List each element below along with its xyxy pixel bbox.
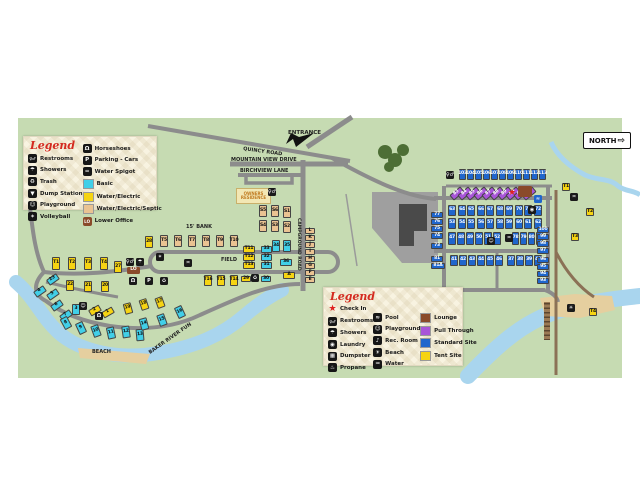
legend-label: Check In bbox=[340, 306, 366, 312]
swatch bbox=[420, 351, 431, 361]
legend-item-water: ♒Water bbox=[373, 360, 420, 369]
swatch bbox=[83, 192, 94, 202]
north-sign: NORTH ⇨ bbox=[583, 132, 631, 149]
legend-label: Playground bbox=[40, 202, 75, 208]
site-81A: 81A bbox=[431, 263, 445, 269]
swatch bbox=[420, 326, 431, 336]
site-74: 74 bbox=[431, 233, 443, 239]
legend-left-col1: ♀♂Restrooms☂Showers♻Trash▼Dump Station☺P… bbox=[28, 153, 83, 223]
legend-item-tent-site: Tent Site bbox=[420, 351, 477, 361]
site-113: 113 bbox=[539, 169, 546, 180]
legend-label: Pool bbox=[385, 315, 398, 321]
check-in-icon: ★ bbox=[328, 304, 337, 314]
laundry-icon: ◉ bbox=[528, 206, 536, 214]
swatch bbox=[83, 204, 94, 214]
site-59: 59 bbox=[505, 218, 513, 229]
site-S3: S3 bbox=[271, 220, 279, 232]
legend-label: Showers bbox=[340, 330, 366, 336]
restrooms-icon: ♀♂ bbox=[28, 154, 37, 163]
legend-item-dump-station: ▼Dump Station bbox=[28, 189, 83, 198]
site-H: H bbox=[305, 256, 315, 262]
site-S1: S1 bbox=[283, 206, 291, 218]
site-36: 36 bbox=[280, 259, 292, 266]
site-41: 41 bbox=[450, 255, 458, 266]
site-T1: T1 bbox=[562, 183, 570, 191]
trash-icon: ♻ bbox=[160, 277, 168, 285]
swatch bbox=[420, 313, 431, 323]
swatch bbox=[83, 179, 94, 189]
pool-icon: ≈ bbox=[373, 313, 382, 322]
legend-label: Basic bbox=[97, 181, 113, 187]
site-75: 75 bbox=[431, 226, 443, 232]
site-63: 63 bbox=[448, 205, 456, 216]
site-69: 69 bbox=[505, 205, 513, 216]
site-67: 67 bbox=[486, 205, 494, 216]
site-S4: S4 bbox=[259, 220, 267, 232]
legend-label: Water bbox=[385, 361, 404, 367]
playground-icon: ☺ bbox=[28, 201, 37, 210]
legend-item-trash: ♻Trash bbox=[28, 177, 83, 186]
site-108: 108 bbox=[499, 169, 506, 180]
site-T3: T3 bbox=[84, 257, 92, 270]
site-44: 44 bbox=[477, 255, 485, 266]
legend-label: Restrooms bbox=[40, 156, 73, 162]
site-27: 27 bbox=[114, 261, 122, 273]
site-T5: T5 bbox=[160, 235, 168, 247]
restrooms-icon: ♀♂ bbox=[126, 258, 134, 266]
site-103: 103 bbox=[459, 169, 466, 180]
beach-label: BEACH bbox=[92, 349, 111, 355]
legend-label: Dump Station bbox=[40, 191, 83, 197]
site-94: 94 bbox=[537, 271, 549, 277]
site-T1: T1 bbox=[52, 257, 60, 270]
propane-icon: ♨ bbox=[328, 363, 337, 372]
legend-right-col1: ★Check In♀♂Restrooms☂Showers◉Laundry▦Dum… bbox=[328, 303, 373, 374]
trash-icon: ♻ bbox=[28, 177, 37, 186]
legend-left: Legend ♀♂Restrooms☂Showers♻Trash▼Dump St… bbox=[23, 136, 157, 210]
legend-left-col2: ΩHorseshoesPParking - Cars♒Water SpigotB… bbox=[83, 143, 162, 227]
legend-item-horseshoes: ΩHorseshoes bbox=[83, 144, 162, 153]
legend-label: Beach bbox=[385, 350, 404, 356]
legend-item-playground: ☺Playground bbox=[28, 201, 83, 210]
legend-label: Propane bbox=[340, 365, 366, 371]
campground-map: ENTRANCE QUINCY ROAD MOUNTAIN VIEW DRIVE… bbox=[0, 0, 640, 495]
site-45: 45 bbox=[486, 255, 494, 266]
legend-right-col3: LoungePull ThroughStandard SiteTent Site bbox=[420, 312, 477, 362]
site-68: 68 bbox=[496, 205, 504, 216]
legend-label: Horseshoes bbox=[95, 146, 131, 152]
site-66: 66 bbox=[477, 205, 485, 216]
legend-item-restrooms: ♀♂Restrooms bbox=[328, 317, 373, 326]
site-98: 98 bbox=[537, 241, 549, 247]
dump-station-icon: ▼ bbox=[28, 189, 37, 198]
site-65: 65 bbox=[467, 205, 475, 216]
site-64: 64 bbox=[458, 205, 466, 216]
site-30: 30 bbox=[261, 276, 271, 282]
legend-item-lower-office: LOLower Office bbox=[83, 217, 162, 226]
site-J: J bbox=[305, 242, 315, 248]
legend-label: Parking - Cars bbox=[95, 157, 139, 163]
restrooms-icon: ♀♂ bbox=[268, 188, 276, 196]
site-95: 95 bbox=[537, 264, 549, 270]
site-S5: S5 bbox=[259, 205, 267, 217]
legend-label: Volleyball bbox=[40, 214, 70, 220]
site-33: 33 bbox=[261, 246, 272, 253]
legend-item-water-spigot: ♒Water Spigot bbox=[83, 167, 162, 176]
site-L: L bbox=[305, 228, 315, 234]
site-T2: T2 bbox=[68, 257, 76, 270]
playground-icon: ☺ bbox=[79, 302, 87, 310]
showers-icon: ☂ bbox=[136, 258, 144, 266]
showers-icon: ☂ bbox=[28, 166, 37, 175]
pool-icon: ≈ bbox=[534, 195, 542, 203]
site-50: 50 bbox=[475, 232, 483, 245]
legend-label: Water Spigot bbox=[95, 169, 136, 175]
bank-label: 15' BANK bbox=[186, 224, 213, 230]
parking-icon: P bbox=[83, 156, 92, 165]
horseshoes-icon: Ω bbox=[83, 144, 92, 153]
site-20: 20 bbox=[101, 281, 109, 292]
legend-item-standard-site: Standard Site bbox=[420, 338, 477, 348]
legend-label: Rec. Room bbox=[385, 338, 418, 344]
site-32: 32 bbox=[261, 254, 272, 261]
mountain-view-label: MOUNTAIN VIEW DRIVE bbox=[231, 157, 297, 163]
legend-item-water-electric: Water/Electric bbox=[83, 192, 162, 202]
site-104: 104 bbox=[467, 169, 474, 180]
site-S6: S6 bbox=[271, 205, 279, 217]
site-T6: T6 bbox=[174, 235, 182, 247]
field-label: FIELD bbox=[221, 257, 237, 263]
legend-item-laundry: ◉Laundry bbox=[328, 340, 373, 349]
site-T4: T4 bbox=[589, 308, 597, 316]
site-53: 53 bbox=[448, 218, 456, 229]
horseshoes-icon: Ω bbox=[95, 312, 103, 320]
site-T11: T11 bbox=[243, 246, 255, 253]
legend-item-rec-room: ♪Rec. Room bbox=[373, 336, 420, 345]
site-105: 105 bbox=[475, 169, 482, 180]
site-77: 77 bbox=[431, 212, 443, 218]
dumpster-icon: ▦ bbox=[328, 352, 337, 361]
site-78: 78 bbox=[512, 232, 519, 245]
playground-icon: ☺ bbox=[373, 325, 382, 334]
site-99: 99 bbox=[537, 234, 549, 240]
restrooms-icon: ♀♂ bbox=[328, 317, 337, 326]
site-56: 56 bbox=[477, 218, 485, 229]
site-E: E bbox=[305, 277, 315, 283]
site-T13: T13 bbox=[243, 262, 255, 269]
site-K: K bbox=[305, 235, 315, 241]
site-13: 13 bbox=[135, 329, 144, 342]
site-T14: T14 bbox=[230, 275, 238, 286]
site-81: 81 bbox=[431, 256, 443, 262]
site-39: 39 bbox=[525, 255, 533, 266]
legend-item-propane: ♨Propane bbox=[328, 363, 373, 372]
water-icon: ♒ bbox=[505, 234, 513, 242]
site-T16: T16 bbox=[204, 275, 212, 286]
site-107: 107 bbox=[491, 169, 498, 180]
site-35: 35 bbox=[283, 240, 291, 252]
site-48: 48 bbox=[457, 232, 465, 245]
legend-label: Playground bbox=[385, 326, 420, 332]
site-34: 34 bbox=[272, 240, 280, 252]
site-109: 109 bbox=[507, 169, 514, 180]
legend-right: Legend ★Check In♀♂Restrooms☂Showers◉Laun… bbox=[323, 287, 463, 366]
beach-icon: ☀ bbox=[567, 304, 575, 312]
site-37: 37 bbox=[507, 255, 515, 266]
site-96: 96 bbox=[537, 257, 549, 263]
legend-label: Dumpster bbox=[340, 353, 371, 359]
campground-road-label: CAMPGROUND ROAD bbox=[296, 218, 302, 271]
site-93: 93 bbox=[537, 278, 549, 284]
site-S2: S2 bbox=[283, 221, 291, 233]
site-A: A bbox=[283, 272, 295, 279]
legend-item-pool: ≈Pool bbox=[373, 313, 420, 322]
site-61: 61 bbox=[524, 218, 532, 229]
north-label: NORTH bbox=[589, 137, 617, 145]
volleyball-icon: ✶ bbox=[28, 212, 37, 221]
water-spigot-icon: ♒ bbox=[83, 167, 92, 176]
legend-item-pull-through: Pull Through bbox=[420, 326, 477, 336]
showers-icon: ☂ bbox=[328, 328, 337, 337]
legend-item-lounge: Lounge bbox=[420, 313, 477, 323]
site-47: 47 bbox=[448, 232, 456, 245]
water-icon: ♒ bbox=[570, 193, 578, 201]
site-55: 55 bbox=[467, 218, 475, 229]
legend-label: Lounge bbox=[434, 315, 457, 321]
restrooms-icon: ♀♂ bbox=[446, 171, 454, 179]
entrance-label: ENTRANCE bbox=[288, 130, 321, 136]
legend-label: Water/Electric/Septic bbox=[97, 206, 162, 212]
owners-residence: OWNERS RESIDENCE bbox=[236, 188, 271, 204]
legend-label: Showers bbox=[40, 167, 66, 173]
legend-label: Pull Through bbox=[434, 328, 474, 334]
legend-item-volleyball: ✶Volleyball bbox=[28, 212, 83, 221]
site-46: 46 bbox=[495, 255, 503, 266]
site-I: I bbox=[305, 249, 315, 255]
site-54: 54 bbox=[458, 218, 466, 229]
site-43: 43 bbox=[468, 255, 476, 266]
legend-label: Trash bbox=[40, 179, 57, 185]
site-31: 31 bbox=[261, 262, 272, 269]
site-79: 79 bbox=[520, 232, 527, 245]
site-97: 97 bbox=[537, 248, 549, 254]
north-arrow-icon: ⇨ bbox=[617, 136, 625, 146]
volleyball-icon: ✶ bbox=[156, 253, 164, 261]
water-icon: ♒ bbox=[373, 360, 382, 369]
legend-item-playground: ☺Playground bbox=[373, 325, 420, 334]
site-57: 57 bbox=[486, 218, 494, 229]
legend-item-beach: ☀Beach bbox=[373, 348, 420, 357]
legend-right-col2: ≈Pool☺Playground♪Rec. Room☀Beach♒Water bbox=[373, 312, 420, 370]
site-T15: T15 bbox=[217, 275, 225, 286]
legend-item-restrooms: ♀♂Restrooms bbox=[28, 154, 83, 163]
site-70: 70 bbox=[515, 205, 523, 216]
legend-item-basic: Basic bbox=[83, 179, 162, 189]
site-58: 58 bbox=[496, 218, 504, 229]
legend-item-parking-cars: PParking - Cars bbox=[83, 156, 162, 165]
trash-icon: ♻ bbox=[251, 274, 259, 282]
legend-label: Standard Site bbox=[434, 340, 477, 346]
site-T8: T8 bbox=[202, 235, 210, 247]
lower-office-icon: LO bbox=[127, 267, 140, 274]
site-111: 111 bbox=[523, 169, 530, 180]
lounge-building bbox=[518, 186, 532, 197]
legend-label: Water/Electric bbox=[97, 194, 141, 200]
legend-label: Tent Site bbox=[434, 353, 461, 359]
site-106: 106 bbox=[483, 169, 490, 180]
site-38: 38 bbox=[516, 255, 524, 266]
site-110: 110 bbox=[515, 169, 522, 180]
site-49: 49 bbox=[466, 232, 474, 245]
site-T9: T9 bbox=[216, 235, 224, 247]
site-21: 21 bbox=[84, 281, 92, 292]
parking-icon: P bbox=[145, 277, 153, 285]
legend-item-dumpster: ▦Dumpster bbox=[328, 352, 373, 361]
site-T2: T2 bbox=[586, 208, 594, 216]
rec-room-icon: ♪ bbox=[373, 336, 382, 345]
site-G: G bbox=[305, 263, 315, 269]
legend-right-title: Legend bbox=[324, 288, 462, 303]
lower-office-icon: LO bbox=[83, 217, 92, 226]
site-22: 22 bbox=[66, 280, 74, 291]
site-100: 100 bbox=[537, 227, 549, 233]
water-spigot-icon: ♒ bbox=[184, 259, 192, 267]
laundry-icon: ◉ bbox=[328, 340, 337, 349]
site-T12: T12 bbox=[243, 254, 255, 261]
legend-label: Restrooms bbox=[340, 318, 373, 324]
site-76: 76 bbox=[431, 219, 443, 225]
site-T4: T4 bbox=[100, 257, 108, 270]
site-80: 80 bbox=[528, 232, 535, 245]
birchview-label: BIRCHVIEW LANE bbox=[240, 168, 289, 174]
site-112: 112 bbox=[531, 169, 538, 180]
beach-icon: ☀ bbox=[373, 348, 382, 357]
legend-item-water-electric-septic: Water/Electric/Septic bbox=[83, 204, 162, 214]
legend-label: Laundry bbox=[340, 342, 365, 348]
site-28: 28 bbox=[145, 236, 153, 248]
legend-item-check-in: ★Check In bbox=[328, 304, 373, 314]
playground-icon: ☺ bbox=[487, 237, 495, 245]
site-42: 42 bbox=[459, 255, 467, 266]
site-F: F bbox=[305, 270, 315, 276]
site-29: 29 bbox=[241, 276, 251, 282]
swatch bbox=[420, 338, 431, 348]
site-60: 60 bbox=[515, 218, 523, 229]
check-in-star: ★ bbox=[507, 188, 517, 198]
legend-label: Lower Office bbox=[95, 218, 134, 224]
legend-item-showers: ☂Showers bbox=[28, 166, 83, 175]
site-73: 73 bbox=[431, 243, 443, 249]
site-T7: T7 bbox=[188, 235, 196, 247]
site-T3: T3 bbox=[571, 233, 579, 241]
horseshoes-icon: Ω bbox=[129, 277, 137, 285]
site-T10: T10 bbox=[230, 235, 238, 247]
legend-item-showers: ☂Showers bbox=[328, 328, 373, 337]
site-12: 12 bbox=[121, 326, 131, 339]
